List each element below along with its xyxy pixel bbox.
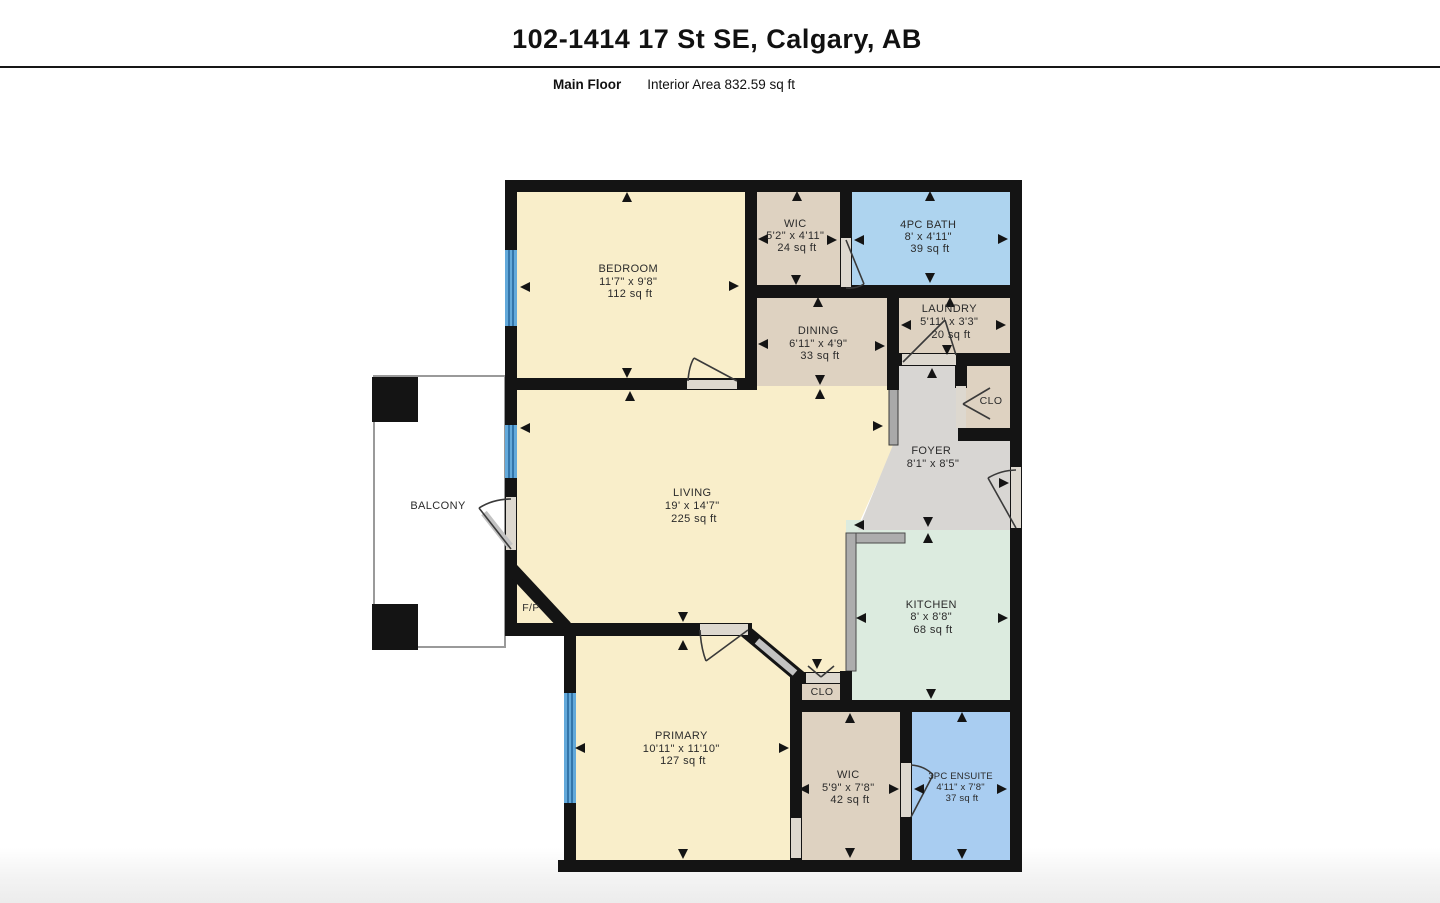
room-label-laundry: LAUNDRY 5'11" x 3'3" 20 sq ft — [920, 303, 982, 341]
windows — [505, 250, 576, 803]
room-labels: BEDROOM 11'7" x 9'8" 112 sq ft WIC 5'2" … — [410, 218, 1002, 806]
room-fills — [511, 186, 1016, 866]
entry-door — [988, 478, 1016, 528]
walls — [505, 180, 1022, 872]
living-closet-diagonal-wall — [745, 631, 800, 677]
room-label-kitchen: KITCHEN 8' x 8'8" 68 sq ft — [906, 599, 961, 636]
balcony-structure — [372, 376, 505, 650]
balcony-pillar — [372, 604, 418, 650]
room-label-closet-upper: CLO — [980, 395, 1003, 407]
subheader: Main Floor Interior Area 832.59 sq ft — [0, 77, 1394, 92]
door-swings — [479, 240, 1016, 817]
room-label-foyer: FOYER 8'1" x 8'5" — [907, 445, 960, 470]
room-label-closet-lower: CLO — [811, 686, 834, 698]
room-label-ensuite: 3PC ENSUITE 4'11" x 7'8" 37 sq ft — [928, 771, 995, 804]
room-label-wic-upper: WIC 5'2" x 4'11" 24 sq ft — [766, 218, 828, 254]
room-label-dining: DINING 6'11" x 4'9" 33 sq ft — [789, 325, 851, 362]
page-title: 102-1414 17 St SE, Calgary, AB — [0, 0, 1437, 55]
bedroom-window — [505, 250, 517, 326]
balcony-pillar — [372, 377, 418, 422]
room-label-primary: PRIMARY 10'11" x 11'10" 127 sq ft — [643, 730, 723, 767]
room-label-balcony: BALCONY — [410, 500, 466, 512]
primary-window — [564, 693, 576, 803]
bedroom-door — [694, 358, 737, 381]
interior-area-label: Interior Area 832.59 sq ft — [647, 77, 795, 92]
floorplan-page: 102-1414 17 St SE, Calgary, AB Main Floo… — [0, 0, 1440, 903]
room-living — [511, 384, 893, 677]
room-foyer — [858, 360, 1016, 530]
fireplace-diagonal-wall — [511, 568, 566, 627]
laundry-bifold-door — [903, 320, 956, 362]
ensuite-door — [911, 775, 933, 817]
door-openings — [506, 238, 1021, 858]
room-dining — [751, 291, 893, 386]
room-wic-lower — [796, 706, 906, 866]
room-bath — [846, 186, 1016, 292]
header-divider — [0, 66, 1440, 68]
primary-door-panel — [757, 641, 795, 673]
room-closet-upper — [961, 360, 1016, 434]
primary-door — [706, 630, 748, 661]
bottom-shadow — [0, 848, 1440, 903]
room-label-fireplace: F/P — [522, 602, 540, 614]
room-primary — [570, 628, 796, 866]
room-kitchen — [846, 520, 1016, 706]
foyer-half-wall — [889, 388, 898, 445]
room-label-living: LIVING 19' x 14'7" 225 sq ft — [665, 487, 723, 525]
balcony-door — [479, 508, 511, 549]
closet-upper-bifold-door — [963, 388, 990, 419]
room-label-wic-lower: WIC 5'9" x 7'8" 42 sq ft — [822, 769, 878, 806]
living-window — [505, 425, 517, 478]
room-bedroom — [511, 186, 751, 384]
room-closet-lower — [796, 678, 846, 706]
room-fireplace-nook — [511, 560, 566, 636]
balcony-door-panel — [484, 513, 510, 546]
room-label-bath: 4PC BATH 8' x 4'11" 39 sq ft — [900, 219, 960, 255]
floor-label: Main Floor — [553, 77, 621, 92]
bath-door — [846, 240, 864, 284]
room-ensuite — [906, 706, 1016, 866]
room-label-bedroom: BEDROOM 11'7" x 9'8" 112 sq ft — [598, 263, 661, 300]
room-laundry — [893, 291, 1016, 359]
room-wic-upper — [751, 186, 846, 291]
dimension-arrows — [520, 191, 1009, 859]
closet-lower-bifold-door — [808, 666, 834, 677]
kitchen-counter — [846, 533, 905, 671]
floor-plan-svg: BEDROOM 11'7" x 9'8" 112 sq ft WIC 5'2" … — [0, 0, 1440, 903]
